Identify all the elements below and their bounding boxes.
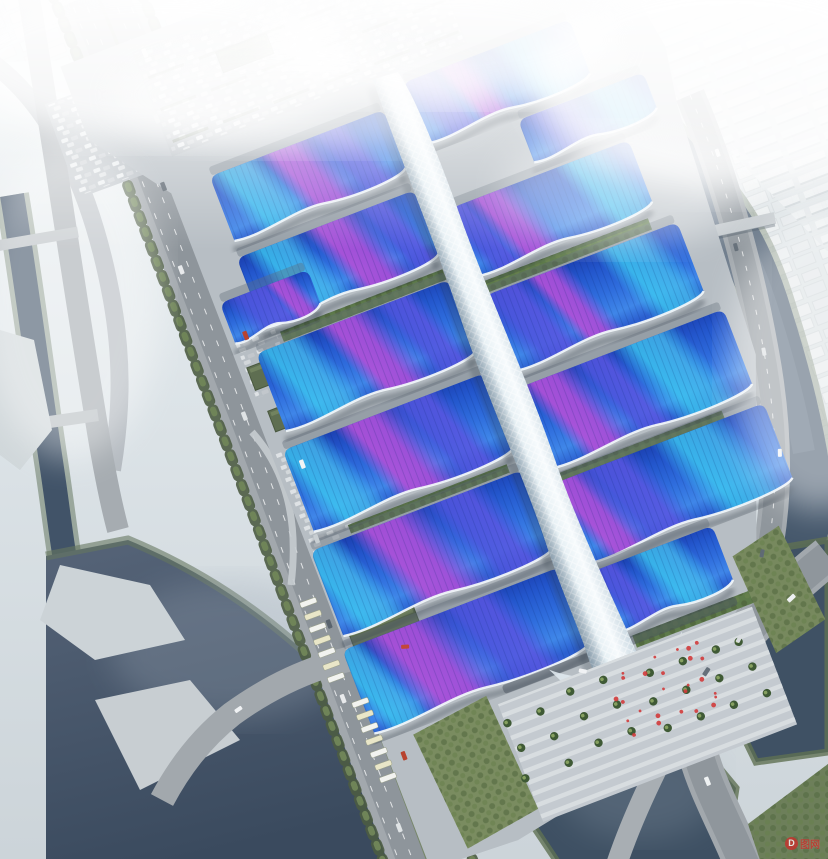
- aerial-rendering: [0, 0, 828, 859]
- vehicle: [401, 644, 409, 649]
- aerial-rendering-stage: D 图网: [0, 0, 828, 859]
